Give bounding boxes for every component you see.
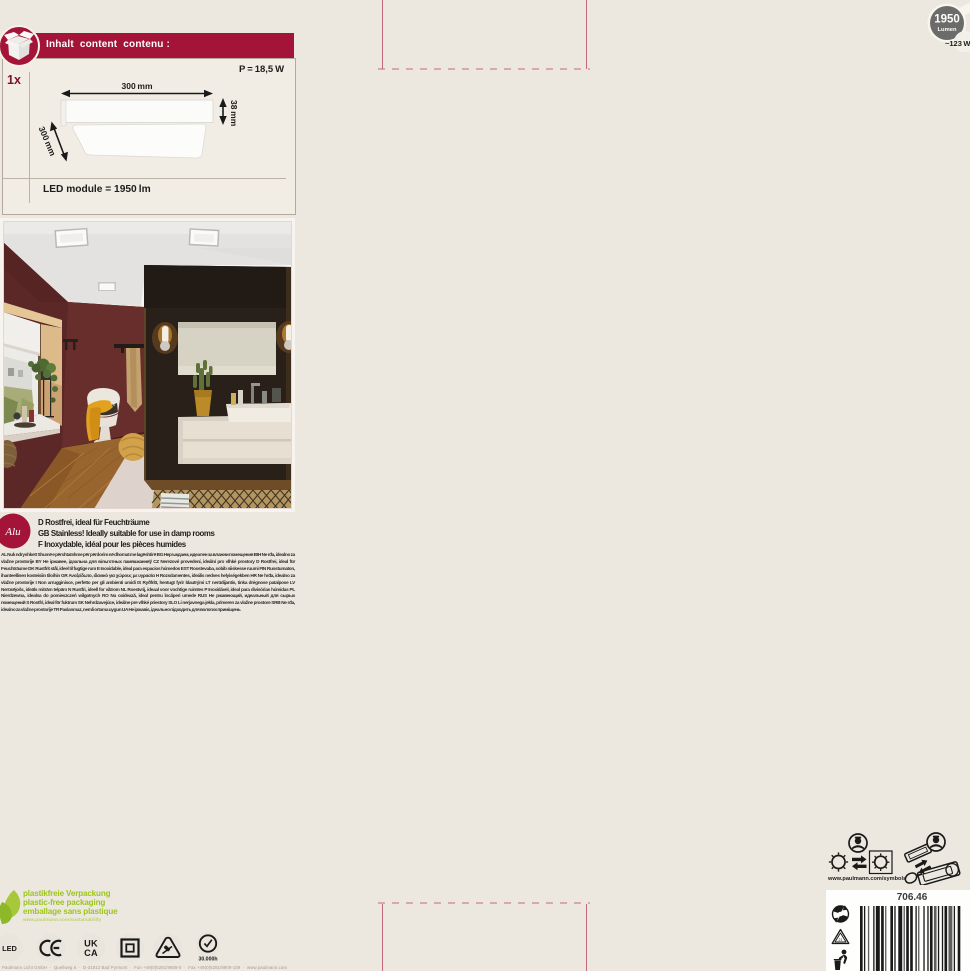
svg-text:1950: 1950 xyxy=(934,14,960,26)
svg-text:~123 W: ~123 W xyxy=(945,39,970,48)
svg-text:38 mm: 38 mm xyxy=(229,100,239,127)
svg-text:Lumen: Lumen xyxy=(937,27,956,33)
svg-text:21: 21 xyxy=(839,938,843,942)
svg-text:LED: LED xyxy=(2,944,17,953)
svg-text:Alu: Alu xyxy=(4,526,21,538)
svg-text:300 mm: 300 mm xyxy=(122,81,153,91)
svg-text:CA: CA xyxy=(84,948,98,958)
svg-text:30.000h: 30.000h xyxy=(198,957,217,963)
